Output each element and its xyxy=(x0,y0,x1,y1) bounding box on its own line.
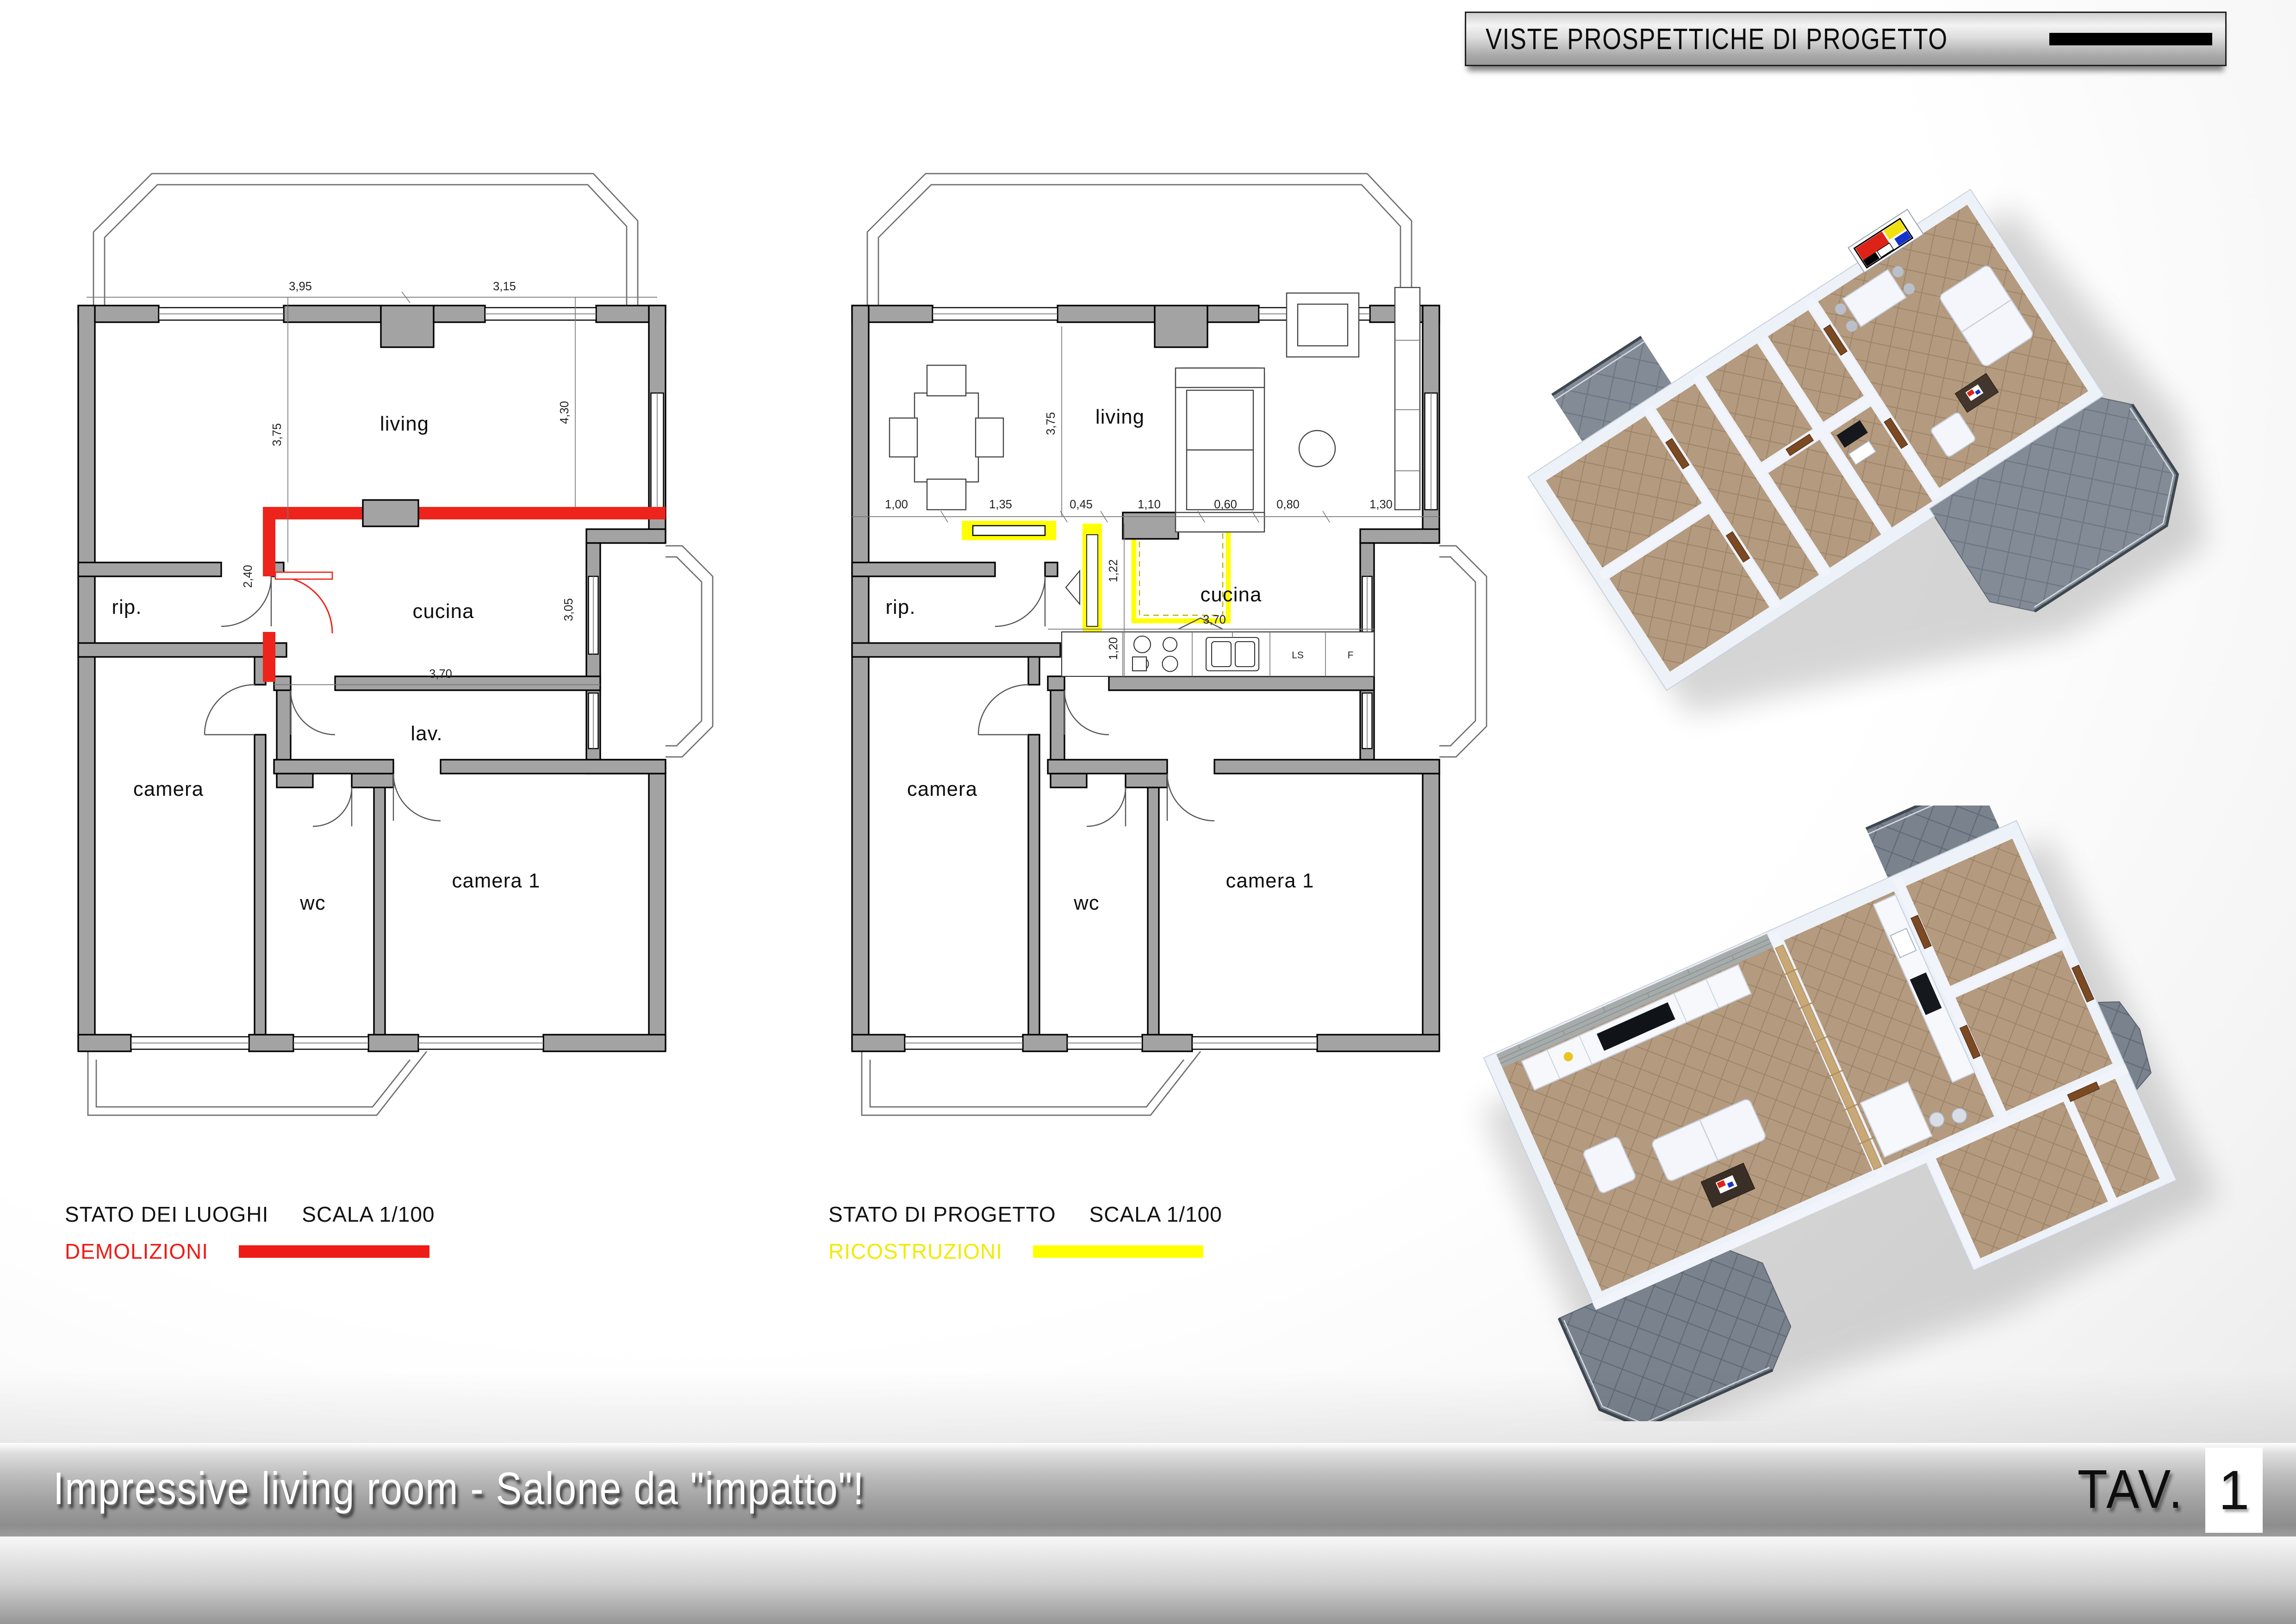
walls xyxy=(78,306,666,1051)
legend-demolizioni-label: DEMOLIZIONI xyxy=(65,1239,208,1264)
room-cucina: cucina xyxy=(1201,584,1262,606)
dim-island-v: 1,20 xyxy=(1107,637,1120,660)
legend-ricostruzioni-label: RICOSTRUZIONI xyxy=(828,1239,1002,1264)
fridge-label: F xyxy=(1348,650,1354,661)
legend-ricostruzioni-swatch xyxy=(1033,1245,1203,1258)
page-shading xyxy=(0,1370,2296,1443)
room-wc: wc xyxy=(299,892,326,914)
title-bar: Impressive living room - Salone da "impa… xyxy=(0,1443,2296,1537)
bay-right-outline xyxy=(666,546,713,757)
page-footer-gradient xyxy=(0,1537,2296,1624)
dim-island-h: 1,22 xyxy=(1107,559,1120,582)
dim-chain-1: 1,35 xyxy=(989,498,1012,511)
banner-rule xyxy=(2049,33,2212,45)
tav-number-box: 1 xyxy=(2205,1448,2263,1533)
room-lav: lav. xyxy=(411,723,442,745)
tav-label: TAV. xyxy=(2078,1458,2185,1521)
banner-title: VISTE PROSPETTICHE DI PROGETTO xyxy=(1486,22,1948,56)
dim-chain-6: 1,30 xyxy=(1369,498,1393,511)
balcony-top-outline xyxy=(867,174,1412,306)
dimensions: 3,95 3,15 3,75 4,30 2,40 3,05 3,70 xyxy=(87,280,657,685)
dim-chain-5: 0,80 xyxy=(1276,498,1300,511)
doors xyxy=(205,576,441,826)
room-cucina: cucina xyxy=(413,600,474,623)
dim-chain-3: 1,10 xyxy=(1138,498,1161,511)
floor-plan-existing: 3,95 3,15 3,75 4,30 2,40 3,05 3,70 livin… xyxy=(55,160,721,1118)
dim-chain-4: 0,60 xyxy=(1214,498,1237,511)
legend-title-text: STATO DI PROGETTO xyxy=(828,1202,1056,1226)
legend-project-title: STATO DI PROGETTOSCALA 1/100 xyxy=(828,1202,1291,1227)
balcony-top-outline xyxy=(93,174,638,306)
balcony-bottom-outline xyxy=(88,1051,427,1115)
dim-cucina-bottom: 3,70 xyxy=(429,668,452,681)
room-camera1: camera 1 xyxy=(1226,870,1314,892)
room-camera: camera xyxy=(133,778,204,800)
legend-project: STATO DI PROGETTOSCALA 1/100 RICOSTRUZIO… xyxy=(828,1202,1291,1264)
legend-title-text: STATO DEI LUOGHI xyxy=(65,1202,268,1226)
sheet-title: Impressive living room - Salone da "impa… xyxy=(53,1462,865,1515)
presentation-board: VISTE PROSPETTICHE DI PROGETTO xyxy=(0,0,2296,1624)
room-rip: rip. xyxy=(112,596,142,618)
room-camera1: camera 1 xyxy=(452,870,541,892)
banner: VISTE PROSPETTICHE DI PROGETTO xyxy=(1465,12,2227,66)
dim-right-vert: 4,30 xyxy=(558,401,571,424)
dishwasher-label: LS xyxy=(1292,650,1304,661)
legend-scale-text: SCALA 1/100 xyxy=(1089,1202,1222,1226)
room-living: living xyxy=(380,413,429,435)
balcony-bottom-outline xyxy=(862,1051,1201,1115)
sink-icon xyxy=(1206,632,1259,671)
tav-number: 1 xyxy=(2219,1458,2250,1522)
dim-left-vert: 3,75 xyxy=(271,423,284,446)
room-rip: rip. xyxy=(885,596,915,618)
room-wc: wc xyxy=(1073,892,1100,914)
dim-chain-0: 1,00 xyxy=(885,498,908,511)
legend-scale-text: SCALA 1/100 xyxy=(302,1202,435,1226)
dim-top-right: 3,15 xyxy=(493,280,516,293)
room-living: living xyxy=(1095,406,1145,428)
perspective-view-bottom xyxy=(1370,806,2272,1421)
dim-chain-2: 0,45 xyxy=(1070,498,1093,511)
room-labels: living cucina rip. camera lav. wc camera… xyxy=(112,413,540,914)
room-camera: camera xyxy=(907,778,977,800)
demolition-walls xyxy=(263,500,666,682)
dim-top-left: 3,95 xyxy=(289,280,312,293)
dim-kitchen-bottom: 3,70 xyxy=(1203,613,1226,626)
dim-left-vert: 3,75 xyxy=(1045,412,1058,435)
dim-cucina-right: 3,05 xyxy=(562,598,575,621)
dim-cucina-left: 2,40 xyxy=(242,565,255,588)
legend-existing: STATO DEI LUOGHISCALA 1/100 DEMOLIZIONI xyxy=(65,1202,528,1264)
legend-demolizioni-swatch xyxy=(239,1245,429,1258)
perspective-view-top xyxy=(1416,148,2263,810)
legend-existing-title: STATO DEI LUOGHISCALA 1/100 xyxy=(65,1202,528,1227)
